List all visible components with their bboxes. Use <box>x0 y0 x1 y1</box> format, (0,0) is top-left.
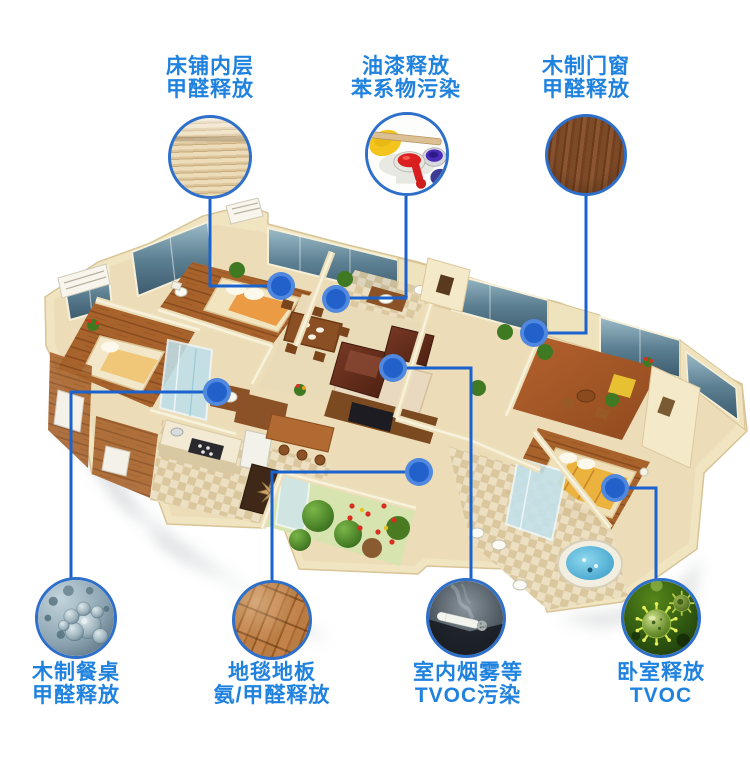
hotspot-dot-bed-liner[interactable] <box>267 272 295 300</box>
hotspot-dot-wood-doors[interactable] <box>520 319 548 347</box>
molecule-spheres-image <box>38 580 114 656</box>
paint-cans-photo <box>365 112 449 196</box>
green-virus-image <box>624 581 698 655</box>
molecule-spheres-photo <box>35 577 117 659</box>
hotspot-dot-floor[interactable] <box>405 458 433 486</box>
dark-wood-grain-photo <box>545 114 627 196</box>
bed-slats-photo <box>168 115 252 199</box>
green-virus-photo <box>621 578 701 658</box>
paint-cans-image <box>368 115 446 193</box>
hotspot-dot-dining-table[interactable] <box>203 378 231 406</box>
label-bedroom-tvoc-line2: TVOC <box>541 684 750 707</box>
hotspot-dot-smoke[interactable] <box>379 354 407 382</box>
wood-floor-planks-photo <box>232 580 312 660</box>
hotspot-dot-paint[interactable] <box>322 285 350 313</box>
jacuzzi <box>558 540 622 588</box>
label-wood-doors-line2: 甲醛释放 <box>466 78 706 101</box>
cigarette-smoke-image <box>429 581 503 655</box>
label-bedroom-tvoc: 卧室释放 TVOC <box>541 661 750 707</box>
hotspot-dot-bedroom-tvoc[interactable] <box>601 474 629 502</box>
label-bedroom-tvoc-line1: 卧室释放 <box>541 661 750 684</box>
label-wood-doors-line1: 木制门窗 <box>466 55 706 78</box>
infographic-canvas: 床铺内层 甲醛释放 油漆释放 苯系物污染 木制门窗 甲醛释放 木制餐桌 甲醛释放… <box>0 0 750 771</box>
small-virus <box>670 591 694 615</box>
apartment-floorplan-illustration <box>0 0 750 771</box>
cigarette-smoke-photo <box>426 578 506 658</box>
label-wood-doors: 木制门窗 甲醛释放 <box>466 55 706 101</box>
